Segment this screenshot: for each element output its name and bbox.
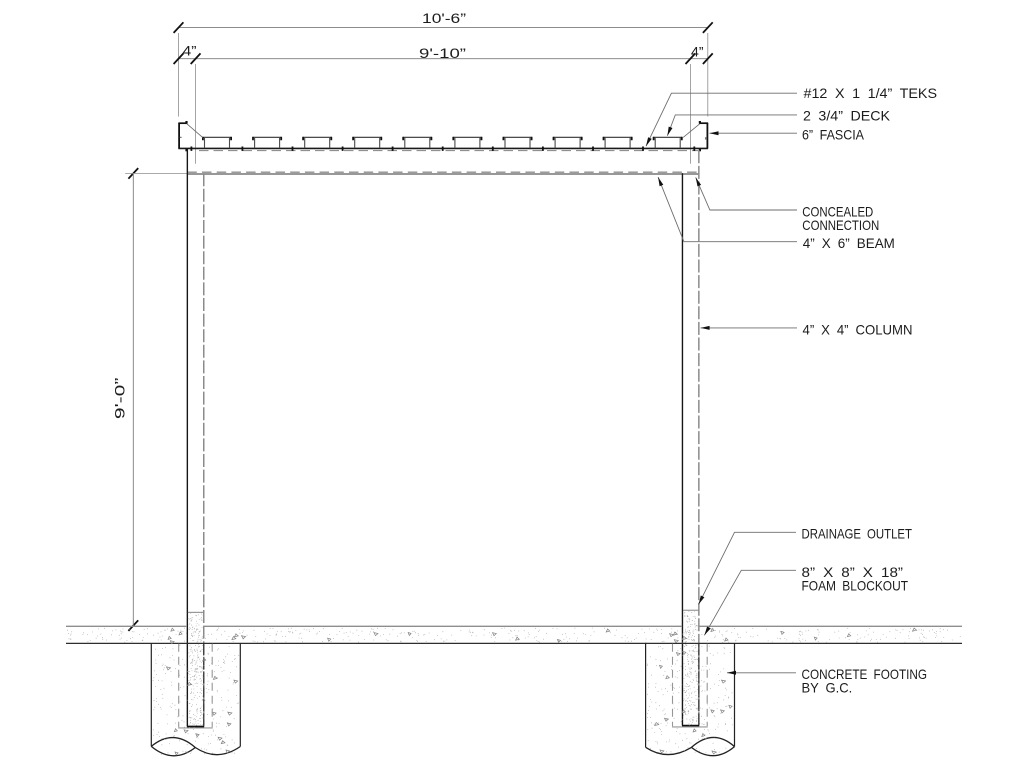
svg-text:#12 X 1 1/4” TEKS: #12 X 1 1/4” TEKS: [804, 86, 938, 101]
svg-text:FOAM BLOCKOUT: FOAM BLOCKOUT: [802, 579, 909, 594]
svg-text:CONNECTION: CONNECTION: [802, 218, 879, 233]
svg-text:4”: 4”: [183, 42, 197, 58]
svg-text:BY G.C.: BY G.C.: [802, 681, 853, 696]
svg-text:DRAINAGE OUTLET: DRAINAGE OUTLET: [802, 527, 913, 542]
svg-text:9'-0”: 9'-0”: [111, 377, 127, 419]
svg-text:4” X 6” BEAM: 4” X 6” BEAM: [803, 236, 895, 251]
svg-text:4”: 4”: [691, 44, 704, 60]
svg-text:10'-6”: 10'-6”: [422, 10, 466, 26]
svg-text:9'-10”: 9'-10”: [419, 45, 466, 61]
svg-text:4” X 4” COLUMN: 4” X 4” COLUMN: [803, 322, 913, 337]
svg-text:2 3/4” DECK: 2 3/4” DECK: [803, 108, 890, 123]
svg-text:6” FASCIA: 6” FASCIA: [802, 127, 865, 142]
